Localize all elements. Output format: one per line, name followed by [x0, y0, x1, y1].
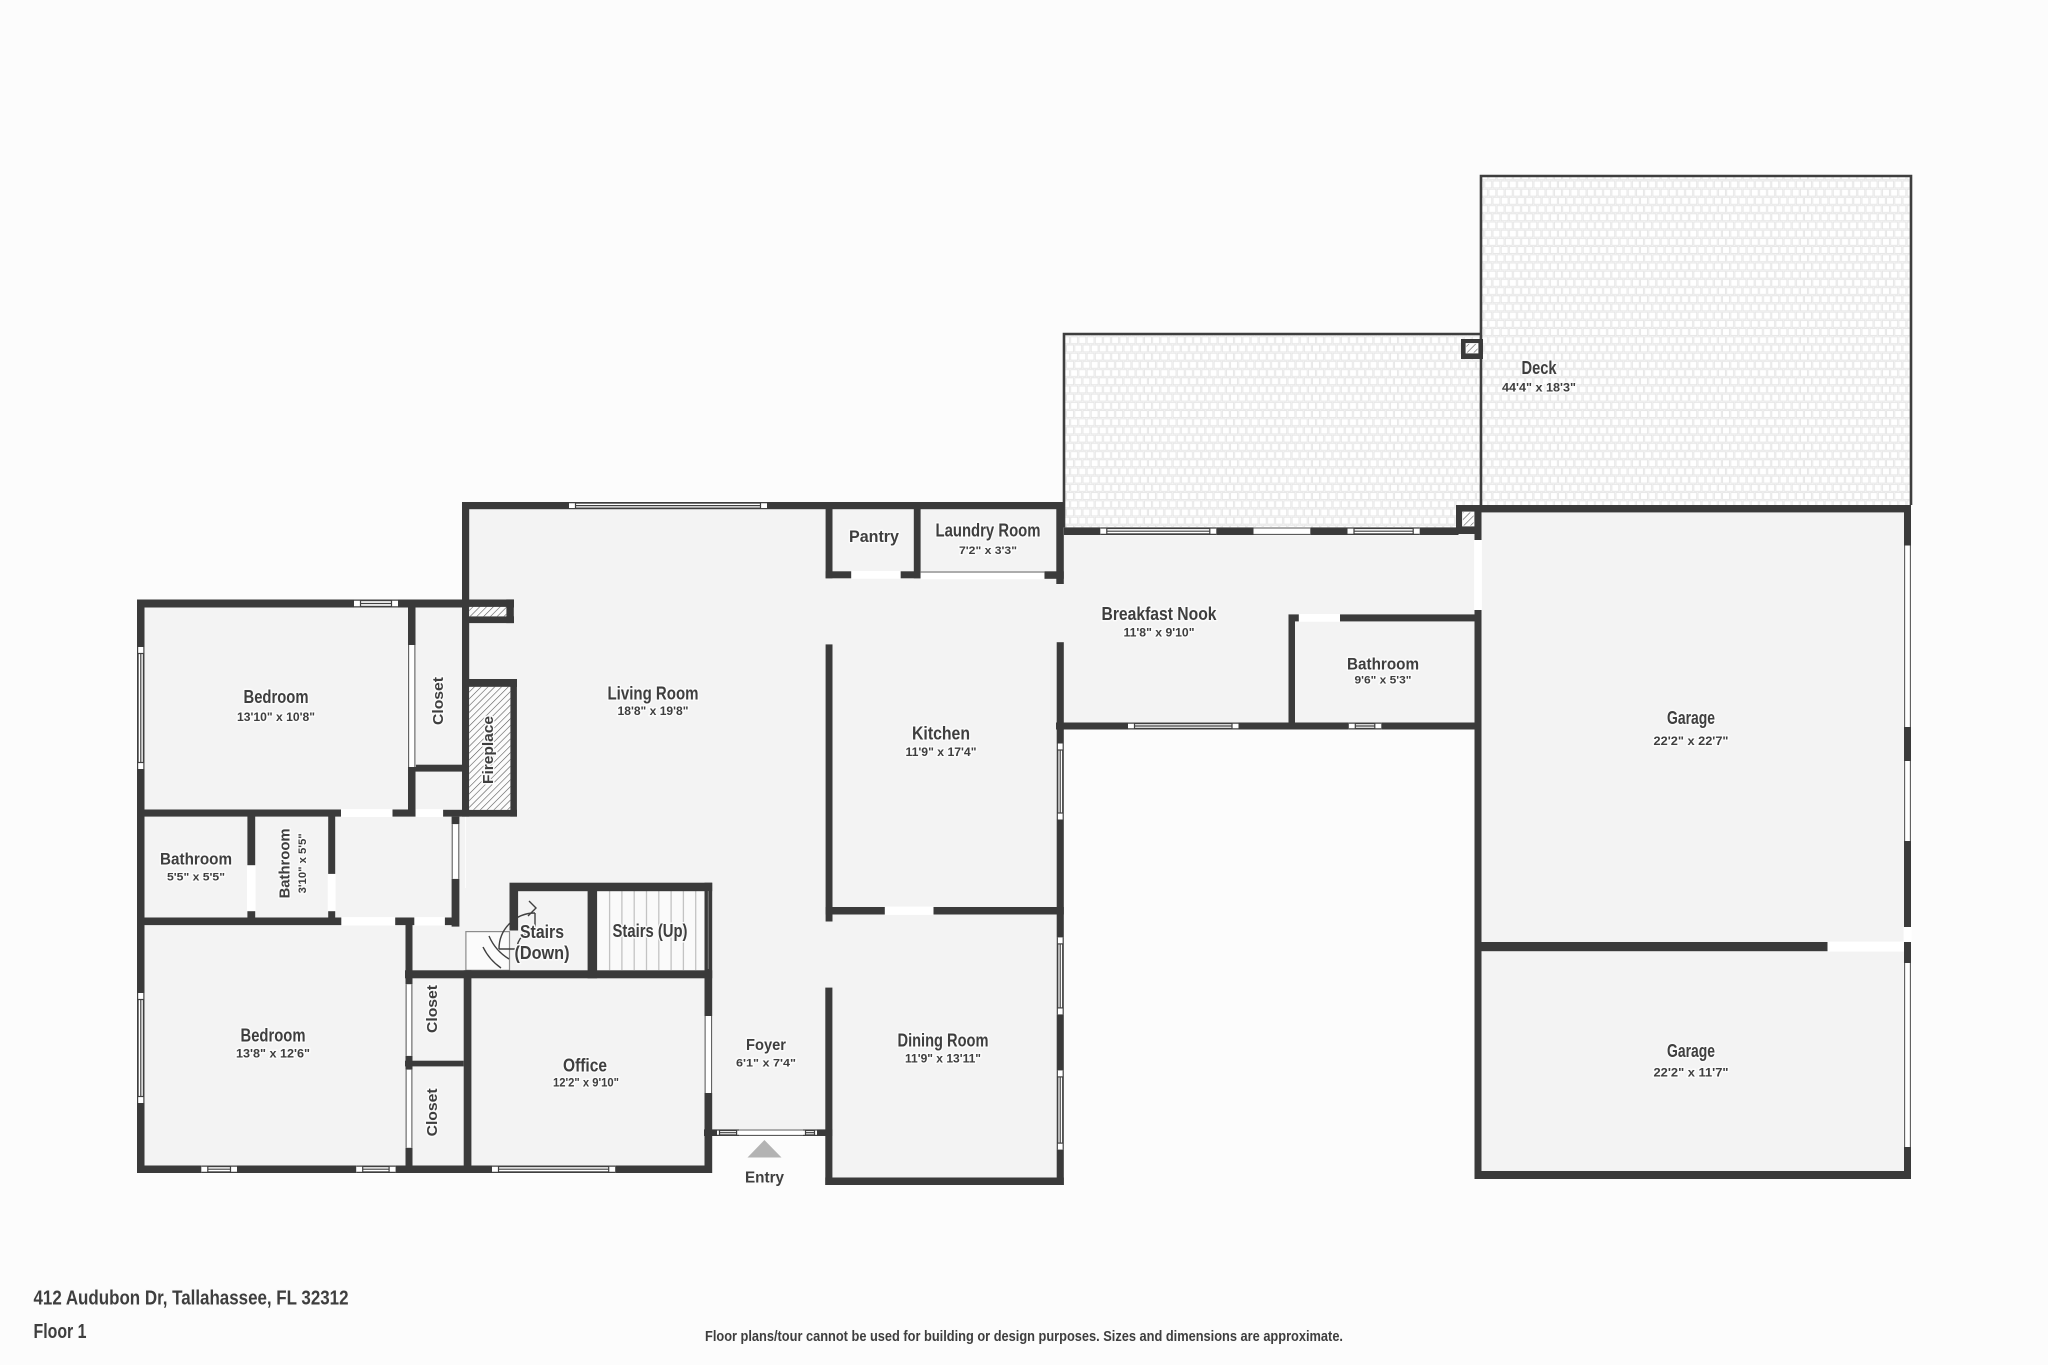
svg-text:Bathroom: Bathroom — [1347, 655, 1419, 674]
svg-text:Closet: Closet — [430, 677, 447, 725]
svg-text:18'8" x 19'8": 18'8" x 19'8" — [618, 706, 689, 718]
svg-text:12'2" x 9'10": 12'2" x 9'10" — [553, 1077, 619, 1089]
svg-text:Bedroom: Bedroom — [241, 1025, 306, 1045]
svg-text:Floor plans/tour cannot be use: Floor plans/tour cannot be used for buil… — [705, 1328, 1343, 1345]
svg-text:9'6" x 5'3": 9'6" x 5'3" — [1355, 675, 1412, 687]
svg-text:22'2" x 11'7": 22'2" x 11'7" — [1654, 1067, 1729, 1079]
svg-text:13'8" x 12'6": 13'8" x 12'6" — [236, 1048, 310, 1060]
svg-text:412 Audubon Dr, Tallahassee, F: 412 Audubon Dr, Tallahassee, FL 32312 — [34, 1287, 349, 1310]
svg-text:5'5" x 5'5": 5'5" x 5'5" — [167, 872, 225, 884]
svg-text:Stairs: Stairs — [520, 922, 564, 942]
svg-text:Bathroom: Bathroom — [278, 828, 294, 898]
svg-text:Bathroom: Bathroom — [160, 849, 232, 868]
svg-text:Entry: Entry — [745, 1170, 784, 1187]
svg-text:Bedroom: Bedroom — [244, 687, 309, 707]
svg-text:Kitchen: Kitchen — [912, 724, 970, 744]
svg-text:(Down): (Down) — [515, 943, 570, 963]
svg-text:Garage: Garage — [1667, 1041, 1715, 1061]
svg-text:Living Room: Living Room — [608, 684, 699, 704]
svg-text:6'1" x 7'4": 6'1" x 7'4" — [736, 1058, 796, 1070]
svg-text:44'4" x 18'3": 44'4" x 18'3" — [1502, 383, 1576, 395]
svg-text:Deck: Deck — [1522, 358, 1558, 378]
svg-text:Breakfast Nook: Breakfast Nook — [1102, 604, 1218, 624]
svg-text:7'2" x 3'3": 7'2" x 3'3" — [959, 545, 1017, 557]
svg-text:Foyer: Foyer — [746, 1037, 786, 1054]
svg-text:Pantry: Pantry — [849, 527, 900, 546]
svg-text:Closet: Closet — [424, 985, 441, 1033]
svg-text:13'10" x 10'8": 13'10" x 10'8" — [237, 712, 315, 724]
svg-text:Garage: Garage — [1667, 708, 1715, 728]
svg-text:11'9" x 17'4": 11'9" x 17'4" — [906, 747, 977, 759]
svg-text:11'9" x 13'11": 11'9" x 13'11" — [905, 1054, 981, 1066]
svg-text:Fireplace: Fireplace — [480, 716, 497, 784]
svg-text:Laundry Room: Laundry Room — [936, 521, 1041, 541]
svg-text:Stairs (Up): Stairs (Up) — [613, 921, 688, 941]
svg-text:Floor 1: Floor 1 — [34, 1320, 87, 1343]
svg-text:22'2" x 22'7": 22'2" x 22'7" — [1654, 736, 1729, 748]
svg-text:Office: Office — [563, 1056, 607, 1076]
svg-text:Closet: Closet — [424, 1088, 441, 1136]
svg-text:Dining Room: Dining Room — [898, 1031, 989, 1051]
svg-text:3'10" x 5'5": 3'10" x 5'5" — [297, 833, 309, 893]
svg-text:11'8" x 9'10": 11'8" x 9'10" — [1124, 628, 1195, 640]
